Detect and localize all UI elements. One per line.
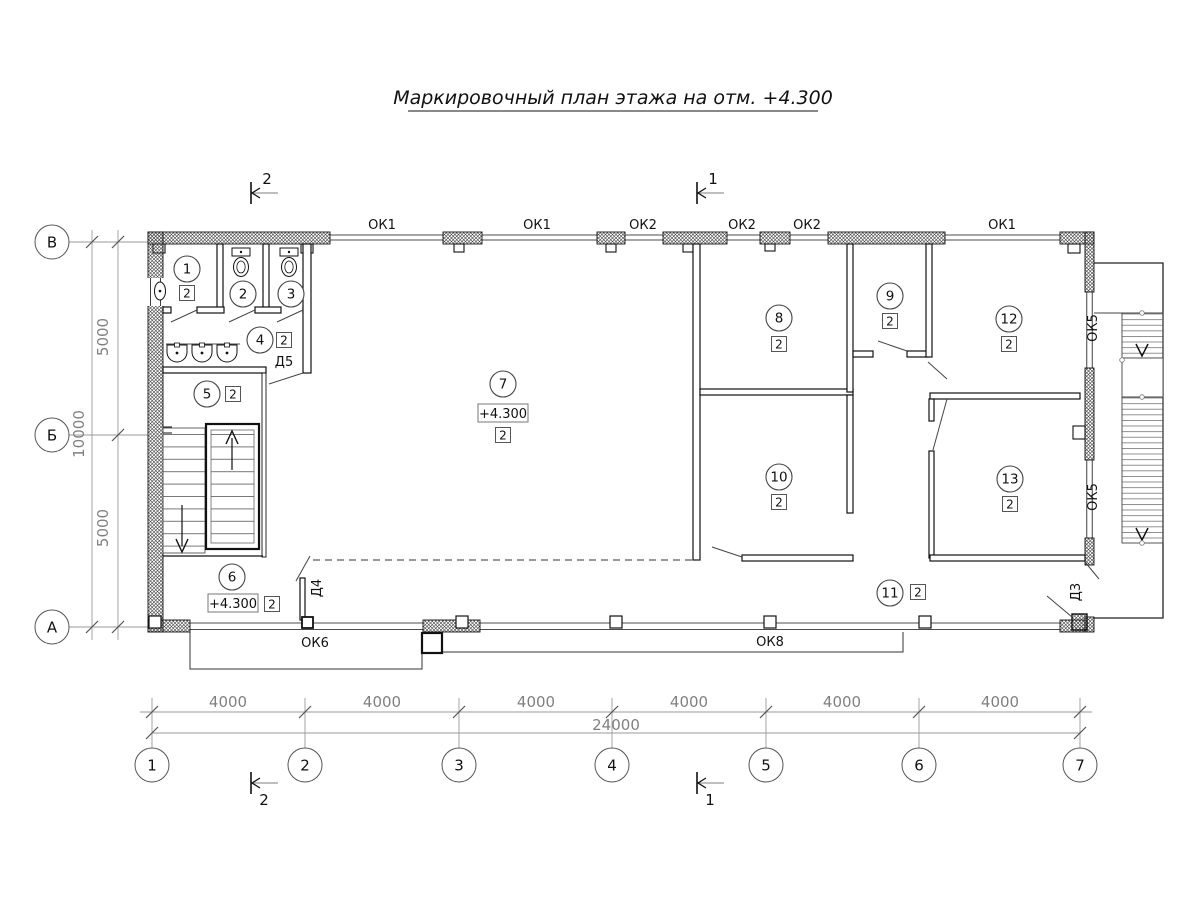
room-2-number: 2 [239, 287, 248, 303]
room-6-number: 6 [228, 570, 237, 586]
room-11-mark: 2 [914, 586, 922, 600]
axis-h-3: 3 [454, 757, 464, 775]
room-9-number: 9 [886, 289, 895, 305]
door-label-d4: Д4 [310, 579, 325, 597]
main-staircase [163, 344, 263, 556]
window-label-ok2-2: ОК2 [728, 218, 756, 233]
opening-labels: ОК1 ОК1 ОК2 ОК2 ОК2 ОК1 ОК6 ОК8 ОК5 ОК5 … [275, 218, 1101, 651]
room-5-number: 5 [203, 387, 212, 403]
axis-h-7: 7 [1075, 757, 1085, 775]
dim-bay-3: 4000 [517, 693, 555, 711]
section-label-2-top: 2 [262, 170, 272, 188]
dim-half-depth-bottom: 5000 [94, 509, 112, 547]
room-circles [174, 256, 1023, 606]
room-7-number: 7 [499, 377, 508, 393]
page-title: Маркировочный план этажа на отм. +4.300 [393, 87, 833, 109]
room-10-number: 10 [770, 470, 787, 486]
section-mark-1-top: 1 [697, 170, 724, 204]
dim-bay-1: 4000 [209, 693, 247, 711]
room-12-mark: 2 [1005, 338, 1013, 352]
room-10-mark: 2 [775, 496, 783, 510]
dim-total-depth: 10000 [70, 410, 88, 458]
exterior-stairs [1094, 263, 1163, 618]
room-1-number: 1 [183, 262, 192, 278]
room-1-mark: 2 [183, 287, 191, 301]
room-12-number: 12 [1000, 312, 1017, 328]
room-6-mark: 2 [268, 598, 276, 612]
door-label-d3: Д3 [1069, 583, 1084, 601]
dim-bay-2: 4000 [363, 693, 401, 711]
window-label-ok2-3: ОК2 [793, 218, 821, 233]
window-label-ok8: ОК8 [756, 635, 784, 650]
dim-bay-6: 4000 [981, 693, 1019, 711]
sink-icon [217, 343, 237, 362]
window-label-ok1-2: ОК1 [523, 218, 551, 233]
porch-outline [190, 632, 903, 669]
section-mark-2-top: 2 [251, 170, 278, 204]
room-4-mark: 2 [280, 334, 288, 348]
section-marks: 2 1 2 1 [251, 170, 724, 809]
sink-icon [167, 343, 187, 362]
toilet-icon [232, 248, 250, 277]
dim-bay-5: 4000 [823, 693, 861, 711]
floor-plan-svg: Маркировочный план этажа на отм. +4.300 … [0, 0, 1200, 900]
window-label-ok5-2: ОК5 [1086, 483, 1101, 511]
door-label-d5: Д5 [275, 355, 293, 370]
section-label-1-top: 1 [708, 170, 718, 188]
room-3-number: 3 [287, 287, 296, 303]
section-label-2-bottom: 2 [259, 791, 269, 809]
room-6-elevation: +4.300 [209, 597, 257, 612]
axis-v-B: В [47, 234, 57, 252]
corner-column [1072, 614, 1087, 630]
section-label-1-bottom: 1 [705, 791, 715, 809]
section-mark-2-bottom: 2 [251, 772, 278, 809]
room-13-number: 13 [1001, 472, 1018, 488]
room-7-mark: 2 [499, 429, 507, 443]
window-label-ok5-1: ОК5 [1086, 314, 1101, 342]
window-label-ok1-1: ОК1 [368, 218, 396, 233]
room-13-mark: 2 [1006, 498, 1014, 512]
dim-bay-4: 4000 [670, 693, 708, 711]
door-post [302, 617, 313, 628]
axis-h-1: 1 [147, 757, 157, 775]
axis-h-4: 4 [607, 757, 617, 775]
room-labels: 1 2 2 3 4 2 5 2 6 +4.300 2 7 +4.300 2 8 … [174, 256, 1023, 612]
window-label-ok2-1: ОК2 [629, 218, 657, 233]
axis-v-B2: Б [47, 427, 57, 445]
drawing-sheet: Маркировочный план этажа на отм. +4.300 … [0, 0, 1200, 900]
axis-h-6: 6 [914, 757, 924, 775]
drawing-title: Маркировочный план этажа на отм. +4.300 [393, 87, 833, 111]
room-8-number: 8 [775, 311, 784, 327]
room-5-mark: 2 [229, 388, 237, 402]
urinal-icon [155, 282, 166, 300]
axis-h-5: 5 [761, 757, 771, 775]
section-mark-1-bottom: 1 [697, 772, 724, 809]
dim-total-width: 24000 [592, 716, 640, 734]
window-label-ok1-3: ОК1 [988, 218, 1016, 233]
dim-half-depth-top: 5000 [94, 318, 112, 356]
sink-icon [192, 343, 212, 362]
bottom-columns [149, 616, 931, 628]
toilet-icon [280, 248, 298, 277]
axis-h-2: 2 [300, 757, 310, 775]
room-11-number: 11 [881, 586, 898, 602]
room-9-mark: 2 [886, 315, 894, 329]
room-8-mark: 2 [775, 338, 783, 352]
room-4-number: 4 [256, 333, 265, 349]
room-7-elevation: +4.300 [479, 407, 527, 422]
axis-v-A: А [47, 619, 58, 637]
window-label-ok6: ОК6 [301, 636, 329, 651]
